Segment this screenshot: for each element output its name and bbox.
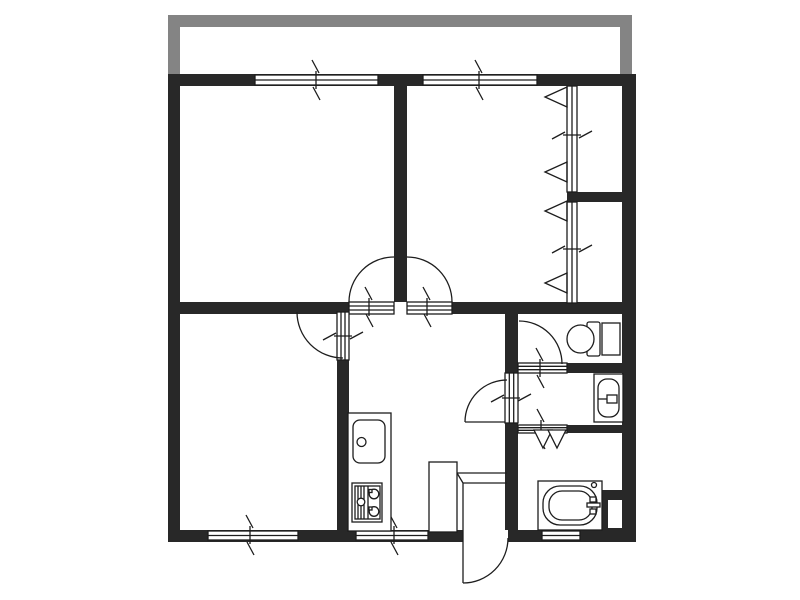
wall-outer-right bbox=[622, 74, 636, 542]
doorway-bedroom1 bbox=[349, 302, 394, 314]
door-arc-living bbox=[297, 312, 343, 358]
stove-burner1-mark bbox=[369, 490, 372, 493]
kitchen-sink-tap bbox=[357, 438, 366, 447]
wall-hall-upper-right bbox=[452, 302, 622, 314]
casement-triangle-4 bbox=[545, 273, 567, 293]
stove-outer bbox=[352, 483, 382, 522]
door-arc-washroom bbox=[465, 380, 507, 422]
door-arc-entrance bbox=[463, 538, 508, 583]
shoe-cabinet bbox=[429, 462, 457, 532]
entrance-opening bbox=[463, 530, 508, 542]
folding-door-right bbox=[548, 430, 566, 448]
toilet-tank bbox=[602, 323, 620, 355]
toilet-bowl bbox=[567, 325, 594, 353]
wall-window-stub bbox=[567, 192, 622, 202]
washbasin-tap bbox=[607, 395, 617, 403]
wall-hall-upper-left bbox=[180, 302, 349, 314]
door-arc-bedroom1 bbox=[349, 257, 394, 302]
balcony-rail-top bbox=[168, 15, 632, 27]
entrance-step bbox=[457, 473, 507, 530]
wall-outer-top bbox=[168, 74, 636, 86]
floor-plan-page bbox=[0, 0, 800, 600]
wall-bedroom-divider bbox=[394, 86, 407, 302]
pipe-space-notch bbox=[608, 500, 622, 528]
door-arc-bedroom2 bbox=[407, 257, 452, 302]
bathtub-drain bbox=[592, 483, 597, 488]
casement-triangle-2 bbox=[545, 162, 567, 182]
wall-outer-left bbox=[168, 74, 180, 542]
bathtub-tap-knob2 bbox=[590, 509, 596, 514]
stove-knob bbox=[357, 498, 365, 506]
doorway-bedroom2 bbox=[407, 302, 452, 314]
doorway-toilet bbox=[518, 363, 567, 373]
stove-burner2-mark bbox=[369, 507, 372, 510]
balcony-rail-right bbox=[620, 15, 632, 75]
bathtub-tap-bar bbox=[587, 503, 600, 507]
casement-triangle-1 bbox=[545, 87, 567, 107]
floor-plan-svg bbox=[0, 0, 800, 600]
casement-triangle-3 bbox=[545, 201, 567, 221]
bathtub-tap-knob1 bbox=[590, 497, 596, 502]
